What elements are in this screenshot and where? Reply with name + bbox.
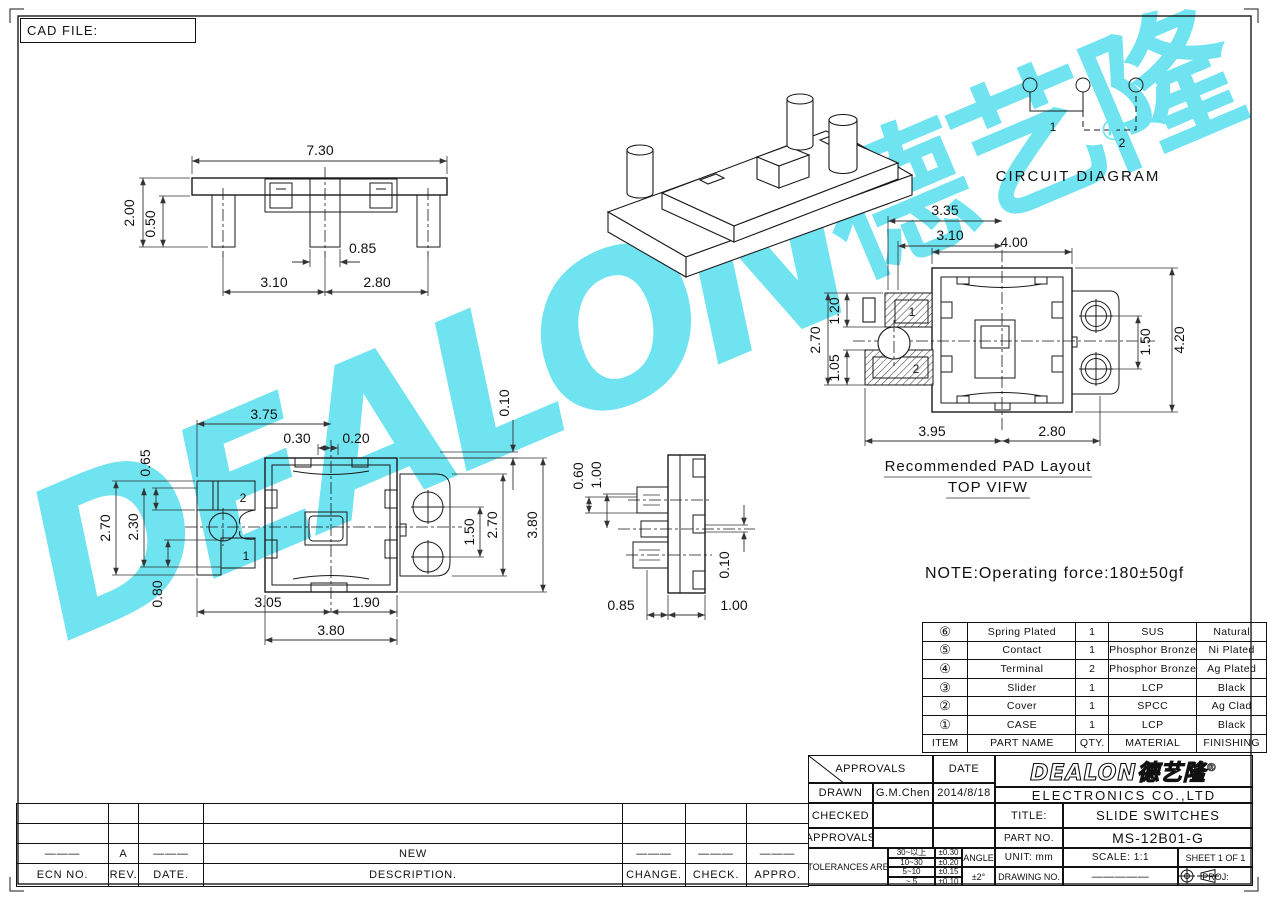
drawing-no-value: ————— xyxy=(1063,867,1178,886)
pad-label-1: 1 xyxy=(909,305,916,319)
company-logo: DEALON德艺隆® xyxy=(995,755,1253,787)
table-header-row: ITEMPART NAMEQTY.MATERIALFINISHING xyxy=(923,734,1267,753)
tol-val-0: ±0.30 xyxy=(935,848,962,858)
dim-front-right: 2.80 xyxy=(363,274,390,290)
dim-bottom-h4: 0.80 xyxy=(149,580,165,607)
dim-pad-t3: 4.00 xyxy=(1000,234,1027,250)
dim-front-left: 3.10 xyxy=(260,274,287,290)
tol-range-2: 5~10 xyxy=(888,867,935,877)
dim-front-width: 7.30 xyxy=(306,142,333,158)
dim-bottom-b1: 3.05 xyxy=(254,594,281,610)
pad-caption-line2: TOP VIFW xyxy=(948,479,1028,496)
approvals-header: APPROVALS xyxy=(835,763,905,775)
dim-pad-r2: 4.20 xyxy=(1171,326,1187,353)
dim-bottom-r2: 2.70 xyxy=(484,511,500,538)
empty-cell xyxy=(139,824,204,844)
drawing-no-label: DRAWING NO. xyxy=(995,867,1063,886)
approvals-label: APPROVALS xyxy=(808,828,873,848)
dim-bottom-r1: 1.50 xyxy=(461,518,477,545)
pad-caption-line1: Recommended PAD Layout xyxy=(885,458,1092,475)
rev-desc: NEW xyxy=(204,844,623,864)
dim-bottom-n2: 0.20 xyxy=(342,430,369,446)
part-material: LCP xyxy=(1109,678,1197,697)
empty-cell xyxy=(109,824,139,844)
pad-layout-drawing: 1 2 3.35 3.10 4.00 2.70 1.20 1.05 xyxy=(807,202,1187,498)
approvals-date xyxy=(933,828,995,848)
checked-date xyxy=(933,803,995,828)
sheet-label: SHEET 1 OF 1 xyxy=(1178,848,1253,867)
part-qty: 1 xyxy=(1076,678,1109,697)
table-row: ⑥Spring Plated1SUSNatural xyxy=(923,623,1267,642)
angle-label: ANGLE xyxy=(962,848,995,867)
tol-val-1: ±0.20 xyxy=(935,858,962,868)
drawn-name: G.M.Chen xyxy=(873,783,933,803)
empty-cell xyxy=(686,804,747,824)
dim-bottom-b2: 1.90 xyxy=(352,594,379,610)
tolerances-label: TOLERANCES ARE xyxy=(808,848,888,886)
part-finishing: Natural xyxy=(1197,623,1267,642)
side-view-drawing: 0.60 1.00 0.10 0.85 1.00 xyxy=(570,455,755,620)
dim-front-leg: 0.50 xyxy=(142,210,158,237)
logo-text: DEALON xyxy=(1030,761,1137,786)
revision-empty-row xyxy=(17,824,809,844)
dim-pad-l3: 1.05 xyxy=(826,354,842,381)
header-rev: REV. xyxy=(109,864,139,887)
dim-bottom-h1: 0.65 xyxy=(137,449,153,476)
part-material: Phosphor Bronze xyxy=(1109,641,1197,660)
title-label: TITLE: xyxy=(995,803,1063,828)
company-name: ELECTRONICS CO.,LTD xyxy=(995,787,1253,803)
part-item: ⑤ xyxy=(923,641,968,660)
header-desc: DESCRIPTION. xyxy=(204,864,623,887)
empty-cell xyxy=(623,804,686,824)
pad-label-2: 2 xyxy=(913,362,920,376)
dim-bottom-n1: 0.30 xyxy=(283,430,310,446)
dim-side-v1: 0.60 xyxy=(570,462,586,489)
dim-pad-l1: 2.70 xyxy=(807,326,823,353)
part-item: ③ xyxy=(923,678,968,697)
tol-range-0: 30~以上 xyxy=(888,848,935,858)
part-finishing: Black xyxy=(1197,715,1267,734)
part-material: SPCC xyxy=(1109,697,1197,716)
tol-range-1: 10~30 xyxy=(888,858,935,868)
part-finishing: Ag Clad xyxy=(1197,697,1267,716)
empty-cell xyxy=(204,824,623,844)
header-part-name: PART NAME xyxy=(968,734,1076,753)
empty-cell xyxy=(109,804,139,824)
tol-val-3: ±0.10 xyxy=(935,877,962,887)
part-qty: 1 xyxy=(1076,641,1109,660)
drawing-sheet: DEALON德艺隆 xyxy=(0,0,1267,900)
dim-side-b2: 1.00 xyxy=(720,597,747,613)
tol-range-3: ~ 5 xyxy=(888,877,935,887)
header-qty: QTY. xyxy=(1076,734,1109,753)
bottom-pad-label-1: 1 xyxy=(243,549,250,563)
table-row: ①CASE1LCPBlack xyxy=(923,715,1267,734)
header-appro: APPRO. xyxy=(747,864,809,887)
header-material: MATERIAL xyxy=(1109,734,1197,753)
drawn-date: 2014/8/18 xyxy=(933,783,995,803)
dim-bottom-b3: 3.80 xyxy=(317,622,344,638)
dim-pad-b2: 2.80 xyxy=(1038,423,1065,439)
dim-pad-t1: 3.35 xyxy=(931,202,958,218)
table-row: ②Cover1SPCCAg Clad xyxy=(923,697,1267,716)
part-item: ⑥ xyxy=(923,623,968,642)
dim-bottom-top: 3.75 xyxy=(250,406,277,422)
bottom-view-drawing: 2 1 3.75 0.30 0.20 xyxy=(97,389,547,645)
header-finishing: FINISHING xyxy=(1197,734,1267,753)
dim-side-v2: 1.00 xyxy=(588,461,604,488)
dim-bottom-h2: 2.70 xyxy=(97,514,113,541)
empty-cell xyxy=(204,804,623,824)
part-no-label: PART NO. xyxy=(995,828,1063,848)
front-view-drawing: 7.30 2.00 0.50 0.85 3.10 2.80 xyxy=(121,142,447,296)
date-header: DATE xyxy=(933,755,995,783)
part-name: Terminal xyxy=(968,660,1076,679)
rev-rev: A xyxy=(109,844,139,864)
revision-empty-row xyxy=(17,804,809,824)
approvals-header-cell: APPROVALS xyxy=(808,755,933,783)
part-qty: 2 xyxy=(1076,660,1109,679)
cad-file-label: CAD FILE: xyxy=(27,23,98,38)
part-item: ① xyxy=(923,715,968,734)
part-material: SUS xyxy=(1109,623,1197,642)
part-finishing: Ag Plated xyxy=(1197,660,1267,679)
dim-bottom-h3: 2.30 xyxy=(125,513,141,540)
title-value: SLIDE SWITCHES xyxy=(1063,803,1253,828)
projection-cell: PROJ: xyxy=(1178,867,1253,886)
dim-bottom-r3: 3.80 xyxy=(524,511,540,538)
revision-row: ——— A ——— NEW ——— ——— ——— xyxy=(17,844,809,864)
part-finishing: Black xyxy=(1197,678,1267,697)
operating-force-note: NOTE:Operating force:180±50gf xyxy=(925,565,1184,582)
first-angle-projection-icon xyxy=(1179,868,1219,884)
dim-pad-b1: 3.95 xyxy=(918,423,945,439)
part-name: Contact xyxy=(968,641,1076,660)
circuit-diagram-title: CIRCUIT DIAGRAM xyxy=(996,168,1161,185)
rev-change: ——— xyxy=(623,844,686,864)
dim-pad-l2: 1.20 xyxy=(826,297,842,324)
part-material: Phosphor Bronze xyxy=(1109,660,1197,679)
dim-bottom-t1: 0.10 xyxy=(496,389,512,416)
tol-val-2: ±0.15 xyxy=(935,867,962,877)
header-date: DATE. xyxy=(139,864,204,887)
empty-cell xyxy=(747,824,809,844)
empty-cell xyxy=(623,824,686,844)
empty-cell xyxy=(17,804,109,824)
dim-pad-t2: 3.10 xyxy=(936,227,963,243)
part-item: ② xyxy=(923,697,968,716)
dim-pad-r1: 1.50 xyxy=(1137,328,1153,355)
rev-date: ——— xyxy=(139,844,204,864)
checked-value xyxy=(873,803,933,828)
bottom-pad-label-2: 2 xyxy=(240,491,247,505)
table-row: ④Terminal2Phosphor BronzeAg Plated xyxy=(923,660,1267,679)
table-row: ③Slider1LCPBlack xyxy=(923,678,1267,697)
logo-cjk: 德艺隆 xyxy=(1137,761,1206,786)
part-item: ④ xyxy=(923,660,968,679)
unit-label: UNIT: mm xyxy=(995,848,1063,867)
part-finishing: Ni Plated xyxy=(1197,641,1267,660)
isometric-view-drawing xyxy=(608,94,912,277)
empty-cell xyxy=(139,804,204,824)
checked-label: CHECKED xyxy=(808,803,873,828)
dim-side-b1: 0.85 xyxy=(607,597,634,613)
drawn-label: DRAWN xyxy=(808,783,873,803)
rev-check: ——— xyxy=(686,844,747,864)
angle-value: ±2° xyxy=(962,867,995,886)
table-row: ⑤Contact1Phosphor BronzeNi Plated xyxy=(923,641,1267,660)
dim-front-height: 2.00 xyxy=(121,199,137,226)
logo-registered-icon: ® xyxy=(1206,761,1218,774)
rev-appro: ——— xyxy=(747,844,809,864)
header-check: CHECK. xyxy=(686,864,747,887)
part-qty: 1 xyxy=(1076,623,1109,642)
header-ecn: ECN NO. xyxy=(17,864,109,887)
empty-cell xyxy=(747,804,809,824)
part-name: Spring Plated xyxy=(968,623,1076,642)
scale-label: SCALE: 1:1 xyxy=(1063,848,1178,867)
dim-front-pin: 0.85 xyxy=(349,240,376,256)
dim-side-r: 0.10 xyxy=(716,551,732,578)
revision-table: ——— A ——— NEW ——— ——— ——— ECN NO. REV. D… xyxy=(16,803,809,887)
circuit-diagram: 1 2 ® CIRCUIT DIAGRAM xyxy=(996,78,1161,185)
part-name: CASE xyxy=(968,715,1076,734)
cad-file-box: CAD FILE: xyxy=(20,18,196,43)
parts-table: ⑥Spring Plated1SUSNatural ⑤Contact1Phosp… xyxy=(922,622,1267,753)
watermark-registered-icon: ® xyxy=(1102,114,1124,147)
part-material: LCP xyxy=(1109,715,1197,734)
part-name: Slider xyxy=(968,678,1076,697)
rev-ecn: ——— xyxy=(17,844,109,864)
header-change: CHANGE. xyxy=(623,864,686,887)
approvals-value xyxy=(873,828,933,848)
part-qty: 1 xyxy=(1076,715,1109,734)
empty-cell xyxy=(686,824,747,844)
revision-header-row: ECN NO. REV. DATE. DESCRIPTION. CHANGE. … xyxy=(17,864,809,887)
part-qty: 1 xyxy=(1076,697,1109,716)
header-item: ITEM xyxy=(923,734,968,753)
part-name: Cover xyxy=(968,697,1076,716)
empty-cell xyxy=(17,824,109,844)
circuit-terminal-1: 1 xyxy=(1050,120,1057,134)
title-block: APPROVALS DATE DRAWN G.M.Chen 2014/8/18 … xyxy=(808,755,1253,886)
part-no-value: MS-12B01-G xyxy=(1063,828,1253,848)
